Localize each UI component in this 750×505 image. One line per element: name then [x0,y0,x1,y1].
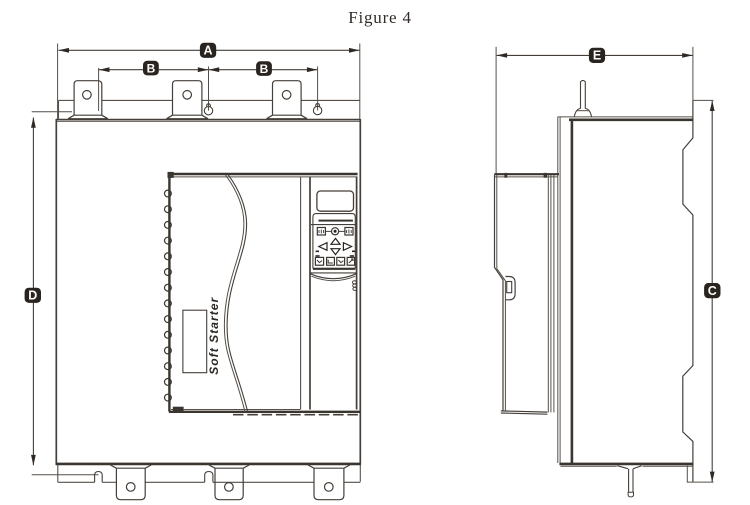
svg-text:C: C [708,284,717,298]
svg-text:B: B [147,61,156,75]
svg-text:D: D [28,289,37,303]
svg-text:E: E [593,49,601,63]
svg-text:A: A [203,44,212,58]
svg-text:Soft Starter: Soft Starter [207,296,221,374]
svg-text:Figure 4: Figure 4 [348,8,412,27]
svg-text:B: B [260,62,269,76]
